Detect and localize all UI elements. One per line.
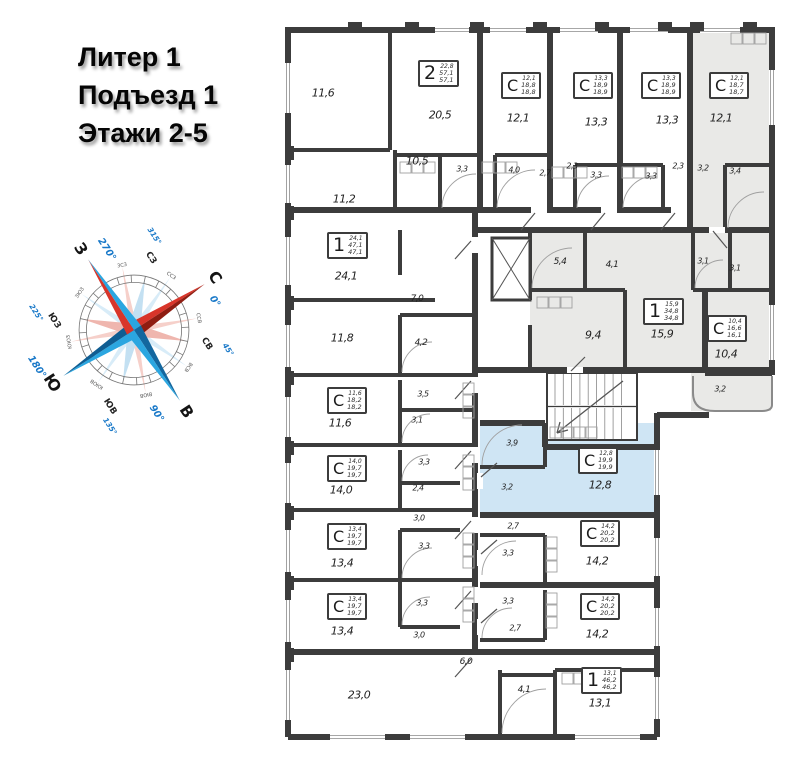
compass-minor-label: ЮЮЗ bbox=[65, 334, 73, 349]
compass-label-sw: ЮЗ bbox=[45, 311, 62, 330]
apartment-type-letter: С bbox=[507, 78, 518, 94]
room-area-label: 3,3 bbox=[590, 171, 601, 180]
apartment-area-values: 12,118,818,8 bbox=[521, 75, 535, 96]
room-area-label: 14,2 bbox=[586, 628, 609, 641]
room-area-label: 10,5 bbox=[406, 155, 429, 168]
compass-deg-225: 225° bbox=[27, 302, 45, 323]
room-area-label: 3,3 bbox=[418, 458, 429, 467]
room-area-label: 3,0 bbox=[413, 514, 424, 523]
apartment-area-values: 15,934,834,8 bbox=[664, 301, 678, 322]
room-area-label: 13,3 bbox=[585, 116, 608, 129]
apartment-area-values: 12,819,919,9 bbox=[598, 450, 612, 471]
compass-label-nw: СЗ bbox=[143, 250, 158, 266]
apartment-area-values: 13,146,246,2 bbox=[602, 670, 616, 691]
room-area-label: 4,0 bbox=[508, 166, 519, 175]
room-area-label: 12,1 bbox=[507, 112, 530, 125]
apartment-badge-studio-18-7[interactable]: С12,118,718,7 bbox=[709, 72, 749, 99]
apartment-area-values: 14,220,220,2 bbox=[600, 523, 614, 544]
room-area-label: 3,3 bbox=[456, 165, 467, 174]
apartment-badge-studio-16-1[interactable]: С10,416,616,1 bbox=[707, 315, 747, 342]
room-area-label: 2,4 bbox=[412, 484, 423, 493]
compass-minor-label: ЮЮВ bbox=[89, 377, 105, 390]
apartment-area-value: 34,8 bbox=[664, 315, 678, 322]
room-area-label: 24,1 bbox=[335, 270, 358, 283]
room-area-label: 2,7 bbox=[539, 169, 550, 178]
room-area-label: 10,4 bbox=[715, 348, 738, 361]
apartment-area-values: 13,318,918,9 bbox=[661, 75, 675, 96]
apartment-area-value: 18,9 bbox=[593, 89, 607, 96]
compass-minor-label: ЗСЗ bbox=[117, 262, 128, 270]
room-area-label: 6,0 bbox=[460, 657, 473, 667]
room-area-label: 3,3 bbox=[645, 172, 656, 181]
compass-rose: С В Ю З 0° 90° 180° 270° СВ ЮВ ЮЗ СЗ 45°… bbox=[24, 222, 244, 438]
room-area-label: 12,1 bbox=[710, 112, 733, 125]
apartment-type-letter: С bbox=[333, 529, 344, 545]
compass-minor-label: ССЗ bbox=[165, 271, 177, 282]
room-area-label: 7,0 bbox=[411, 294, 424, 304]
room-area-label: 3,3 bbox=[418, 542, 429, 551]
room-area-label: 2,7 bbox=[509, 624, 520, 633]
room-area-label: 9,4 bbox=[585, 329, 601, 342]
room-area-label: 4,1 bbox=[606, 260, 619, 270]
apartment-type-letter: С bbox=[586, 526, 597, 542]
apartment-badge-studio-18-8[interactable]: С12,118,818,8 bbox=[501, 72, 541, 99]
compass-minor-label: ВЮВ bbox=[139, 390, 153, 398]
room-area-label: 3,1 bbox=[697, 257, 708, 266]
room-area-label: 3,3 bbox=[502, 549, 513, 558]
apartment-area-value: 18,8 bbox=[521, 89, 535, 96]
apartment-type-letter: С bbox=[647, 78, 658, 94]
apartment-area-values: 13,419,719,7 bbox=[347, 596, 361, 617]
apartment-area-value: 20,2 bbox=[600, 610, 614, 617]
apartment-area-value: 47,1 bbox=[348, 249, 362, 256]
room-area-label: 12,8 bbox=[589, 479, 612, 492]
room-area-label: 13,3 bbox=[656, 114, 679, 127]
apartment-badge-2room-57-1[interactable]: 222,857,157,1 bbox=[418, 60, 459, 87]
apartment-area-values: 11,618,218,2 bbox=[347, 390, 361, 411]
header-line-floors: Этажи 2-5 bbox=[78, 114, 218, 152]
compass-label-west: З bbox=[70, 239, 91, 258]
plan-header: Литер 1 Подъезд 1 Этажи 2-5 bbox=[78, 38, 218, 152]
room-area-label: 3,2 bbox=[714, 385, 725, 394]
apartment-type-letter: С bbox=[333, 599, 344, 615]
apartment-area-values: 14,019,719,7 bbox=[347, 458, 361, 479]
apartment-badge-studio-19-7[interactable]: С14,019,719,7 bbox=[327, 455, 367, 482]
room-area-label: 3,2 bbox=[697, 164, 708, 173]
apartment-badge-studio-18-2[interactable]: С11,618,218,2 bbox=[327, 387, 367, 414]
room-area-label: 3,3 bbox=[502, 597, 513, 606]
room-area-label: 11,2 bbox=[333, 193, 356, 206]
room-area-label: 14,2 bbox=[586, 555, 609, 568]
compass-label-ne: СВ bbox=[199, 336, 215, 353]
apartment-type-letter: С bbox=[586, 599, 597, 615]
apartment-area-values: 22,857,157,1 bbox=[439, 63, 453, 84]
apartment-area-values: 13,419,719,7 bbox=[347, 526, 361, 547]
header-line-liter: Литер 1 bbox=[78, 38, 218, 76]
compass-deg-315: 315° bbox=[146, 226, 164, 247]
apartment-badge-studio-20-2[interactable]: С14,220,220,2 bbox=[580, 593, 620, 620]
room-area-label: 3,1 bbox=[729, 264, 740, 273]
apartment-badge-1room-47-1[interactable]: 124,147,147,1 bbox=[327, 232, 368, 259]
room-area-label: 20,5 bbox=[429, 109, 452, 122]
compass-minor-label: ВСВ bbox=[182, 361, 193, 373]
room-area-label: 11,6 bbox=[312, 87, 335, 100]
room-area-label: 4,1 bbox=[518, 685, 531, 695]
apartment-type-letter: С bbox=[333, 461, 344, 477]
apartment-type-letter: С bbox=[579, 78, 590, 94]
room-area-label: 3,1 bbox=[411, 416, 422, 425]
compass-deg-90: 90° bbox=[147, 403, 166, 424]
room-area-label: 11,6 bbox=[329, 417, 352, 430]
room-area-label: 11,8 bbox=[331, 332, 354, 345]
room-area-label: 3,3 bbox=[416, 599, 427, 608]
room-area-label: 14,0 bbox=[330, 484, 353, 497]
apartment-badge-studio-18-9[interactable]: С13,318,918,9 bbox=[641, 72, 681, 99]
apartment-type-letter: 2 bbox=[424, 64, 436, 83]
apartment-area-value: 57,1 bbox=[439, 77, 453, 84]
header-line-entrance: Подъезд 1 bbox=[78, 76, 218, 114]
apartment-area-values: 12,118,718,7 bbox=[729, 75, 743, 96]
compass-label-north: С bbox=[204, 268, 225, 287]
apartment-type-letter: 1 bbox=[587, 671, 599, 690]
compass-label-east: В bbox=[176, 402, 198, 422]
compass-deg-0: 0° bbox=[207, 294, 222, 310]
apartment-area-values: 13,318,918,9 bbox=[593, 75, 607, 96]
apartment-type-letter: С bbox=[333, 393, 344, 409]
room-area-label: 23,0 bbox=[348, 689, 371, 702]
apartment-area-value: 20,2 bbox=[600, 537, 614, 544]
compass-deg-45: 45° bbox=[221, 341, 236, 358]
room-area-label: 5,4 bbox=[554, 257, 567, 267]
apartment-type-letter: 1 bbox=[333, 236, 345, 255]
room-area-label: 13,4 bbox=[331, 625, 354, 638]
apartment-area-value: 19,7 bbox=[347, 540, 361, 547]
room-area-label: 3,5 bbox=[417, 390, 428, 399]
room-area-label: 2,3 bbox=[566, 162, 577, 171]
compass-minor-label: ЗЮЗ bbox=[74, 286, 86, 299]
compass-deg-135: 135° bbox=[101, 416, 119, 437]
apartment-type-letter: С bbox=[584, 453, 595, 469]
apartment-area-value: 46,2 bbox=[602, 684, 616, 691]
compass-minor-label: ССВ bbox=[194, 312, 202, 324]
room-area-label: 3,9 bbox=[506, 439, 517, 448]
apartment-badge-studio-19-7[interactable]: С13,419,719,7 bbox=[327, 593, 367, 620]
compass-deg-180: 180° bbox=[25, 354, 48, 381]
apartment-area-value: 18,9 bbox=[661, 89, 675, 96]
apartment-badge-studio-19-7[interactable]: С13,419,719,7 bbox=[327, 523, 367, 550]
room-area-label: 4,2 bbox=[415, 338, 428, 348]
room-area-label: 13,4 bbox=[331, 557, 354, 570]
apartment-area-value: 19,7 bbox=[347, 610, 361, 617]
floor-plan: 11,620,512,113,313,312,111,210,53,34,02,… bbox=[285, 15, 775, 740]
apartment-area-values: 10,416,616,1 bbox=[727, 318, 741, 339]
room-area-label: 2,3 bbox=[672, 162, 683, 171]
apartment-type-letter: С bbox=[715, 78, 726, 94]
apartment-badge-1room-46-2[interactable]: 113,146,246,2 bbox=[581, 667, 622, 694]
apartment-area-values: 24,147,147,1 bbox=[348, 235, 362, 256]
room-area-label: 13,1 bbox=[589, 697, 612, 710]
compass-star bbox=[24, 222, 244, 438]
apartment-area-value: 19,9 bbox=[598, 464, 612, 471]
apartment-area-value: 18,2 bbox=[347, 404, 361, 411]
room-area-label: 3,0 bbox=[413, 631, 424, 640]
compass-label-se: ЮВ bbox=[101, 397, 119, 417]
apartment-badge-studio-18-9[interactable]: С13,318,918,9 bbox=[573, 72, 613, 99]
label-layer: 11,620,512,113,313,312,111,210,53,34,02,… bbox=[285, 15, 775, 740]
room-area-label: 3,2 bbox=[501, 483, 512, 492]
room-area-label: 2,7 bbox=[507, 522, 518, 531]
apartment-area-value: 16,1 bbox=[727, 332, 741, 339]
apartment-type-letter: 1 bbox=[649, 302, 661, 321]
room-area-label: 15,9 bbox=[651, 328, 674, 341]
apartment-badge-studio-20-2[interactable]: С14,220,220,2 bbox=[580, 520, 620, 547]
apartment-badge-studio-19-9[interactable]: С12,819,919,9 bbox=[578, 447, 618, 474]
compass-deg-270: 270° bbox=[95, 236, 118, 263]
apartment-type-letter: С bbox=[713, 321, 724, 337]
apartment-badge-1room-34-8[interactable]: 115,934,834,8 bbox=[643, 298, 684, 325]
apartment-area-value: 19,7 bbox=[347, 472, 361, 479]
apartment-area-values: 14,220,220,2 bbox=[600, 596, 614, 617]
apartment-area-value: 18,7 bbox=[729, 89, 743, 96]
room-area-label: 3,4 bbox=[729, 167, 740, 176]
